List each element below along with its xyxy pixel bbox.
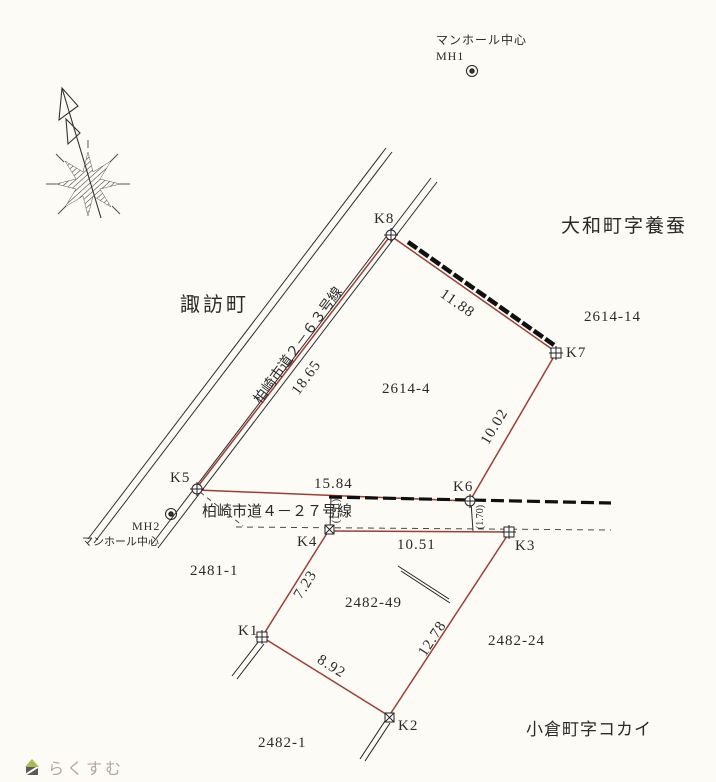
label-parcel-2614-4: 2614-4 [382,380,431,399]
point-symbol-k2 [385,713,394,722]
label-point-k4: K4 [297,533,317,552]
label-point-k6: K6 [453,478,473,497]
point-symbol-k4 [325,525,334,534]
label-point-k3: K3 [515,537,535,556]
point-symbol-k3 [502,525,516,539]
label-district-ogura: 小倉町字コカイ [526,719,652,740]
wall-hatch-k8-k7 [408,242,554,345]
survey-drawing [0,0,716,782]
label-mh1-caption: マンホール中心 [436,33,527,48]
road-2-63-lines [88,148,437,548]
label-point-k7: K7 [566,344,586,363]
label-offset-k4: (1.91) [331,499,344,523]
fence-tail-k2 [360,721,390,761]
north-arrow-icon [46,88,130,218]
survey-map-page: マンホール中心 MH1 大和町字養蚕 諏訪町 小倉町字コカイ 柏崎市道２－６３号… [0,0,716,782]
watermark-label: らくすむ [48,755,124,779]
label-parcel-2481-1: 2481-1 [190,562,239,581]
label-point-k1: K1 [238,622,258,641]
label-point-k8: K8 [374,210,394,229]
label-parcel-2482-24: 2482-24 [488,632,545,651]
rakusumu-house-icon [24,759,41,776]
label-mh2-name: MH2 [132,519,160,534]
label-road-4-27: 柏崎市道４－２７号線 [202,503,352,522]
label-district-yamato: 大和町字養蚕 [561,215,687,239]
label-mh1-name: MH1 [436,49,464,64]
label-district-suwa: 諏訪町 [180,293,249,318]
structure-line-2482-49 [398,566,450,603]
label-mh2-caption: マンホール中心 [82,536,159,550]
label-parcel-2482-1: 2482-1 [258,734,307,753]
label-parcel-2482-49: 2482-49 [345,594,402,613]
label-point-k2: K2 [398,717,418,736]
label-offset-k6: (1.70) [475,505,488,529]
label-parcel-2614-14: 2614-14 [584,308,641,327]
fence-tail-k1 [232,641,264,679]
point-symbol-k7 [549,346,563,360]
manhole-symbol-mh1 [467,66,478,77]
watermark: らくすむ [24,755,124,779]
label-distance-k5-k6: 15.84 [314,475,353,494]
label-point-k5: K5 [170,469,190,488]
label-distance-k4-k3: 10.51 [397,536,436,555]
